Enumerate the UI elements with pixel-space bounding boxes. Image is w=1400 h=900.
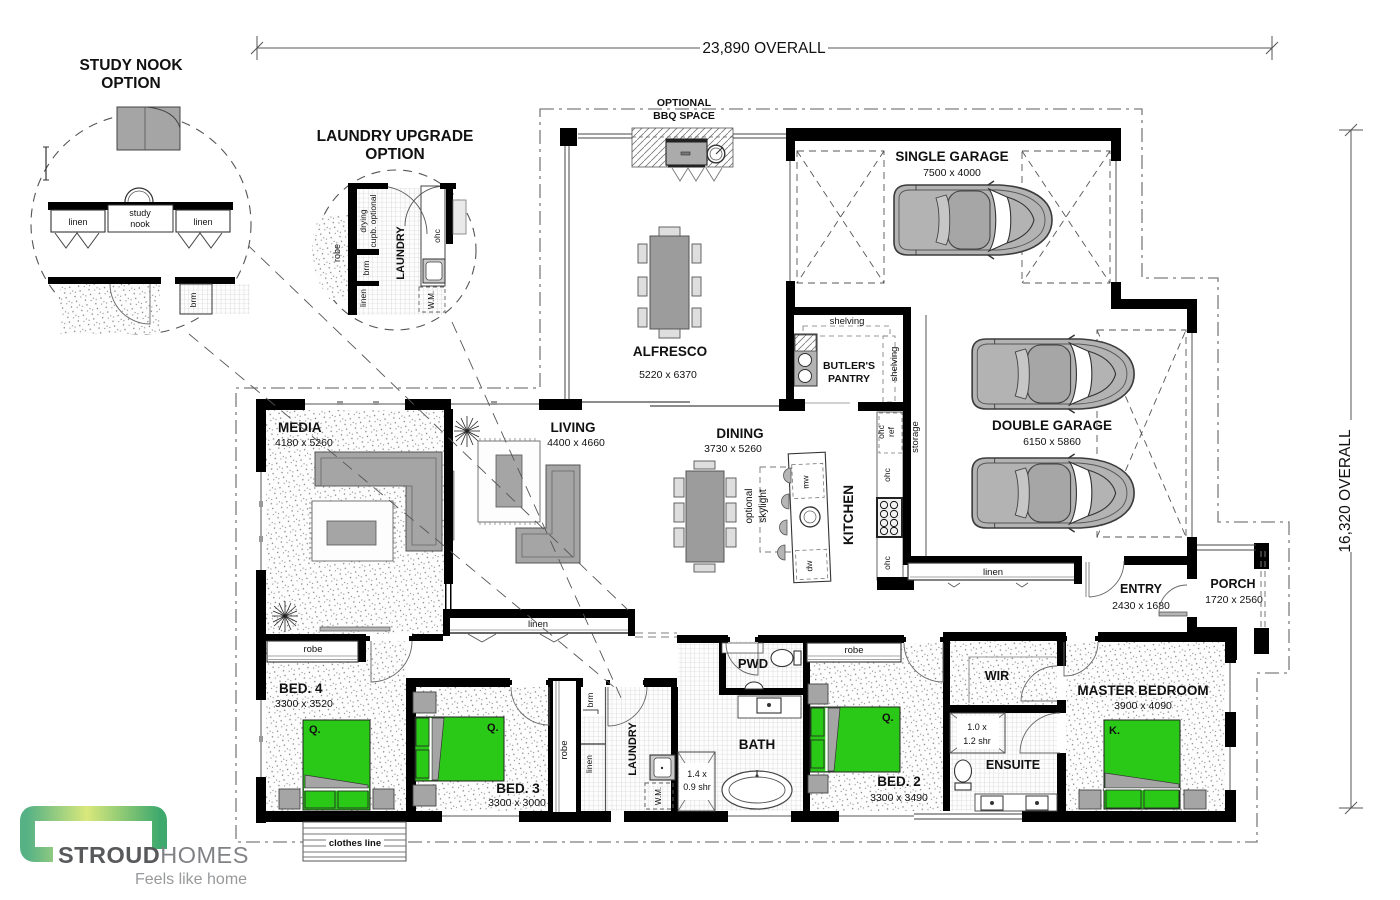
- svg-text:3300 x 3490: 3300 x 3490: [870, 792, 928, 804]
- svg-text:ENTRY: ENTRY: [1120, 582, 1163, 596]
- svg-text:BED. 2: BED. 2: [877, 774, 921, 789]
- svg-text:LIVING: LIVING: [550, 420, 595, 435]
- svg-text:robe: robe: [303, 644, 322, 655]
- svg-text:BED. 3: BED. 3: [496, 781, 540, 796]
- svg-text:ohc: ohc: [882, 555, 892, 569]
- svg-text:ohc: ohc: [432, 228, 442, 242]
- svg-text:LAUNDRY: LAUNDRY: [627, 722, 639, 776]
- svg-text:DINING: DINING: [716, 426, 763, 441]
- svg-text:linen: linen: [528, 619, 548, 630]
- svg-text:Q.: Q.: [309, 724, 321, 736]
- svg-text:linen: linen: [584, 755, 594, 773]
- svg-text:linen: linen: [983, 567, 1003, 578]
- svg-text:BBQ SPACE: BBQ SPACE: [653, 110, 715, 122]
- svg-text:0.9 shr: 0.9 shr: [683, 782, 711, 792]
- svg-text:linen: linen: [358, 289, 368, 307]
- svg-text:clothes line: clothes line: [329, 838, 381, 849]
- svg-text:ref: ref: [886, 426, 896, 437]
- svg-text:7500 x 4000: 7500 x 4000: [923, 167, 981, 179]
- svg-text:16,320 OVERALL: 16,320 OVERALL: [1337, 429, 1354, 553]
- svg-text:ohc: ohc: [876, 424, 886, 438]
- svg-text:Q.: Q.: [882, 712, 894, 724]
- svg-text:3300 x 3520: 3300 x 3520: [275, 698, 333, 710]
- svg-text:drying: drying: [358, 209, 368, 232]
- svg-text:MEDIA: MEDIA: [278, 420, 322, 435]
- svg-text:linen: linen: [193, 217, 212, 227]
- svg-text:LAUNDRY UPGRADE: LAUNDRY UPGRADE: [317, 128, 474, 145]
- svg-text:BUTLER'S: BUTLER'S: [823, 360, 875, 372]
- svg-text:K.: K.: [1109, 725, 1120, 737]
- svg-text:W.M.: W.M.: [654, 787, 663, 805]
- svg-text:SINGLE GARAGE: SINGLE GARAGE: [895, 149, 1008, 164]
- svg-text:robe: robe: [559, 740, 570, 759]
- svg-text:ENSUITE: ENSUITE: [986, 758, 1040, 772]
- svg-text:OPTIONAL: OPTIONAL: [657, 97, 712, 109]
- svg-text:1720 x 2560: 1720 x 2560: [1205, 594, 1263, 606]
- svg-text:W.M.: W.M.: [427, 291, 436, 309]
- svg-text:skylight: skylight: [758, 489, 769, 523]
- svg-text:robe: robe: [332, 244, 342, 262]
- svg-text:ALFRESCO: ALFRESCO: [633, 344, 707, 359]
- svg-text:LAUNDRY: LAUNDRY: [395, 226, 407, 280]
- svg-text:brm: brm: [361, 261, 371, 276]
- svg-text:linen: linen: [68, 217, 87, 227]
- svg-text:3900 x 4090: 3900 x 4090: [1114, 700, 1172, 712]
- svg-text:BATH: BATH: [739, 737, 776, 752]
- svg-text:1.4 x: 1.4 x: [687, 769, 707, 779]
- svg-text:brm: brm: [188, 293, 198, 308]
- svg-text:1.0 x: 1.0 x: [967, 722, 987, 732]
- svg-text:3300 x 3000: 3300 x 3000: [488, 797, 546, 809]
- svg-text:shelving: shelving: [889, 347, 900, 382]
- svg-text:storage: storage: [910, 421, 921, 453]
- svg-text:shelving: shelving: [830, 316, 865, 327]
- svg-text:study: study: [129, 208, 151, 218]
- svg-text:brm: brm: [585, 693, 595, 708]
- svg-text:optional: optional: [744, 488, 755, 523]
- svg-text:cupb. optional: cupb. optional: [368, 194, 378, 247]
- svg-text:WIR: WIR: [985, 669, 1009, 683]
- svg-text:OPTION: OPTION: [101, 75, 160, 92]
- svg-text:5220 x 6370: 5220 x 6370: [639, 369, 697, 381]
- svg-text:DOUBLE GARAGE: DOUBLE GARAGE: [992, 418, 1112, 433]
- svg-text:STUDY NOOK: STUDY NOOK: [79, 57, 183, 74]
- svg-text:PORCH: PORCH: [1210, 577, 1255, 591]
- svg-text:BED. 4: BED. 4: [279, 681, 323, 696]
- svg-text:mw: mw: [800, 474, 811, 489]
- svg-text:Q.: Q.: [487, 722, 499, 734]
- svg-text:6150 x 5860: 6150 x 5860: [1023, 436, 1081, 448]
- svg-text:STROUDHOMES: STROUDHOMES: [58, 842, 249, 868]
- svg-text:1.2 shr: 1.2 shr: [963, 736, 991, 746]
- svg-text:robe: robe: [844, 645, 863, 656]
- svg-text:dw: dw: [804, 560, 815, 572]
- svg-text:ohc: ohc: [882, 467, 892, 481]
- svg-text:23,890 OVERALL: 23,890 OVERALL: [702, 40, 826, 57]
- svg-text:3730 x 5260: 3730 x 5260: [704, 443, 762, 455]
- svg-text:PANTRY: PANTRY: [828, 373, 870, 385]
- svg-text:OPTION: OPTION: [365, 146, 424, 163]
- svg-text:Feels like home: Feels like home: [135, 871, 247, 888]
- svg-text:MASTER BEDROOM: MASTER BEDROOM: [1077, 683, 1208, 698]
- svg-text:KITCHEN: KITCHEN: [841, 485, 856, 545]
- svg-text:nook: nook: [130, 219, 150, 229]
- svg-text:4180 x 5260: 4180 x 5260: [275, 437, 333, 449]
- svg-text:4400 x 4660: 4400 x 4660: [547, 437, 605, 449]
- svg-text:PWD: PWD: [738, 656, 768, 671]
